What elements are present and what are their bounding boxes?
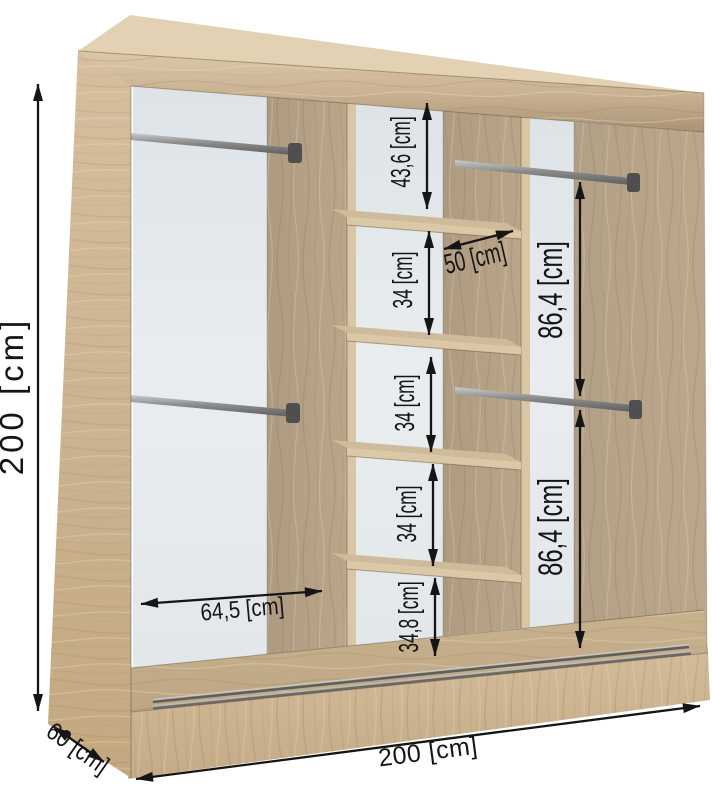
rod-end-cap: [629, 400, 642, 419]
right-panel-grain: [574, 122, 707, 652]
divider-right-grain: [443, 111, 521, 636]
dim-lower-hanging-label: 86,4 [cm]: [532, 478, 570, 576]
dim-shelf-space-bottom-label: 34,8 [cm]: [393, 581, 424, 652]
dim-shelf-space-top-label: 43,6 [cm]: [385, 116, 416, 187]
wardrobe-diagram: 200 [cm] 43,6 [cm] 34 [cm] 34 [cm] 34 [c…: [0, 0, 712, 791]
dim-shelf-space-3-label: 34 [cm]: [389, 375, 420, 432]
divider-right-front-edge: [521, 117, 530, 628]
dim-shelf-space-2-label: 34 [cm]: [387, 252, 418, 309]
rod-end-cap: [288, 143, 302, 163]
back-panel-left-section: [133, 86, 267, 668]
rod-end-cap: [627, 173, 640, 192]
divider-left-grain: [267, 97, 347, 654]
dim-total-height-label: 200 [cm]: [0, 317, 30, 476]
rod-end-cap: [286, 403, 300, 423]
dim-upper-hanging-label: 86,4 [cm]: [532, 241, 570, 339]
dim-shelf-space-4-label: 34 [cm]: [391, 486, 422, 543]
wardrobe-diagram-canvas: 200 [cm] 43,6 [cm] 34 [cm] 34 [cm] 34 [c…: [0, 0, 712, 791]
